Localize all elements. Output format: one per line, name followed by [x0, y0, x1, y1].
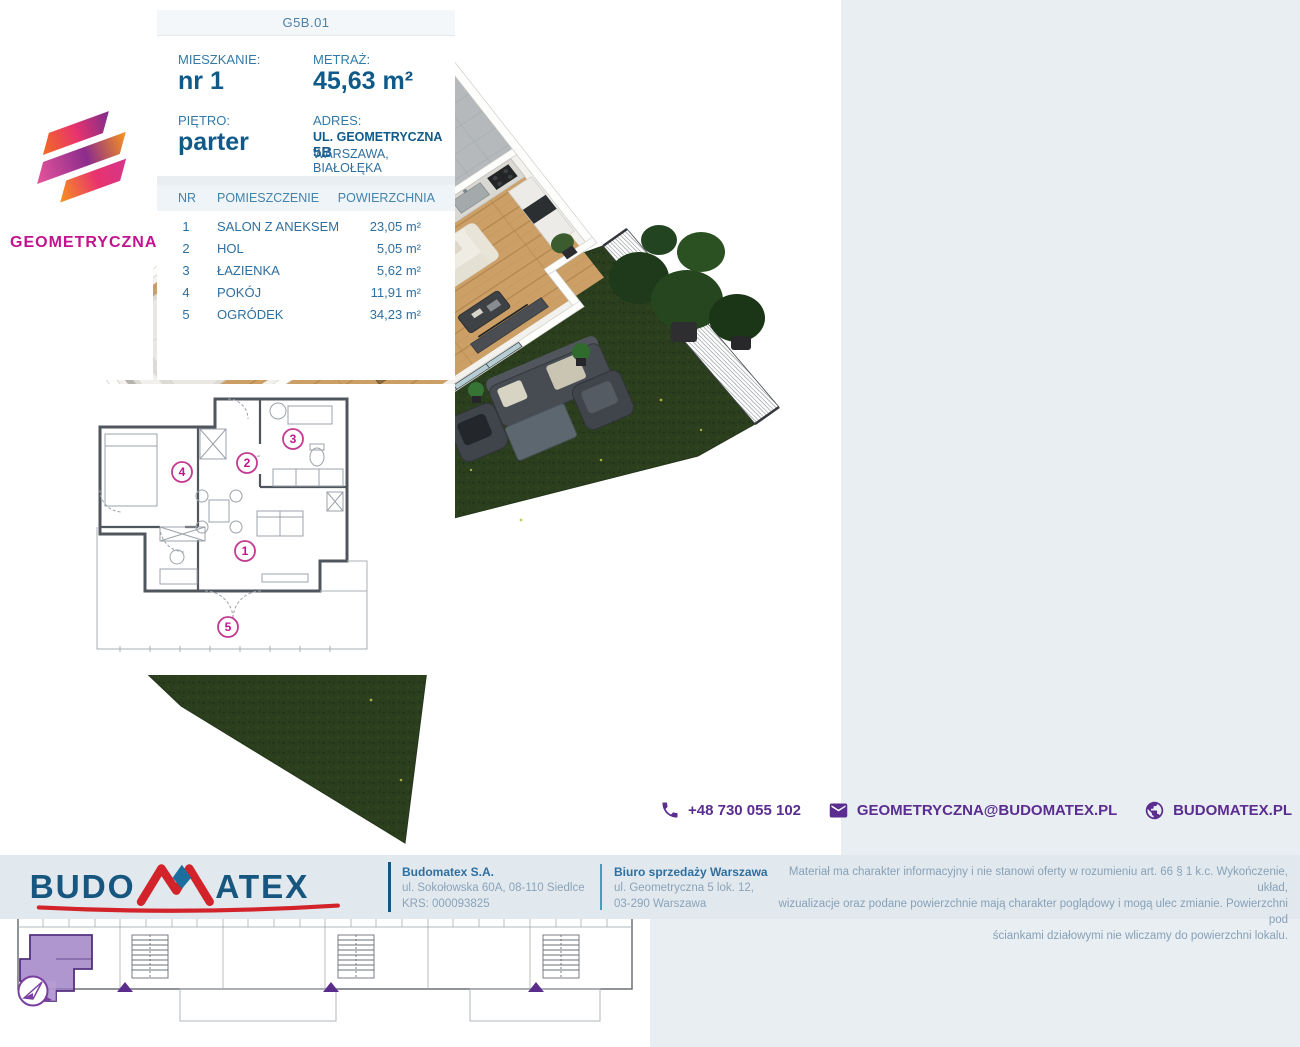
office-address-line2: 03-290 Warszawa	[614, 896, 768, 912]
table-row: 3 ŁAZIENKA 5,62 m²	[157, 260, 455, 282]
floor-label: PIĘTRO:	[178, 113, 230, 128]
sales-office-info: Biuro sprzedaży Warszawa ul. Geometryczn…	[614, 864, 768, 912]
phone-number: +48 730 055 102	[688, 802, 801, 819]
office-name: Biuro sprzedaży Warszawa	[614, 864, 768, 880]
table-row: 5 OGRÓDEK 34,23 m²	[157, 304, 455, 326]
table-row: 4 POKÓJ 11,91 m²	[157, 282, 455, 304]
floor-value: parter	[178, 128, 249, 157]
phone-icon	[660, 800, 680, 820]
door-swings-2d	[100, 399, 261, 619]
apartment-label: MIESZKANIE:	[178, 52, 260, 67]
rooms-table-header: NR POMIESZCZENIE POWIERZCHNIA	[157, 185, 455, 211]
unit-code: G5B.01	[157, 10, 455, 36]
terrace-outlines	[180, 989, 600, 1021]
address-label: ADRES:	[313, 113, 361, 128]
company-krs: KRS: 000093825	[402, 896, 585, 912]
address-city: WARSZAWA, BIAŁOŁĘKA	[313, 147, 455, 175]
geometryczna-hexagon-logo	[27, 105, 137, 225]
floorplan-2d: 1 2 3 4 5	[10, 384, 455, 675]
room-marker-2: 2	[244, 456, 251, 470]
room-marker-5: 5	[225, 620, 232, 634]
website-url: BUDOMATEX.PL	[1173, 802, 1292, 819]
room-marker-1: 1	[242, 544, 249, 558]
company-name: Budomatex S.A.	[402, 864, 585, 880]
budomatex-logo-part2: ATEX	[215, 869, 309, 906]
company-address: ul. Sokołowska 60A, 08-110 Siedlce	[402, 880, 585, 896]
office-address-line1: ul. Geometryczna 5 lok. 12,	[614, 880, 768, 896]
email-link[interactable]: GEOMETRYCZNA@BUDOMATEX.PL	[828, 800, 1117, 821]
table-row: 2 HOL 5,05 m²	[157, 238, 455, 260]
room-marker-3: 3	[290, 432, 297, 446]
room-marker-4: 4	[179, 465, 186, 479]
table-row: 1 SALON Z ANEKSEM 23,05 m²	[157, 216, 455, 238]
company-info: Budomatex S.A. ul. Sokołowska 60A, 08-11…	[402, 864, 585, 912]
furniture-2d	[105, 403, 343, 584]
globe-icon	[1144, 800, 1165, 821]
floorplan-2d-panel: 1 2 3 4 5	[10, 384, 455, 675]
footer-divider-1	[388, 862, 391, 912]
envelope-icon	[828, 800, 849, 821]
footer: BUDO ATEX Budomatex S.A. ul. Sokołowska …	[0, 855, 1300, 919]
footer-divider-2	[600, 864, 602, 910]
area-label: METRAŻ:	[313, 52, 370, 67]
budomatex-logo-mountain	[141, 865, 210, 902]
email-address: GEOMETRYCZNA@BUDOMATEX.PL	[857, 802, 1117, 819]
apartment-value: nr 1	[178, 67, 224, 96]
phone-link[interactable]: +48 730 055 102	[660, 800, 801, 820]
brand-name: GEOMETRYCZNA	[10, 234, 153, 252]
website-link[interactable]: BUDOMATEX.PL	[1144, 800, 1292, 821]
budomatex-logo: BUDO ATEX	[18, 861, 368, 913]
area-value: 45,63 m²	[313, 67, 413, 96]
apartment-info-panel: G5B.01 MIESZKANIE: nr 1 METRAŻ: 45,63 m²…	[157, 10, 455, 380]
apartment-outline	[100, 399, 347, 591]
divider	[157, 176, 455, 185]
legal-disclaimer: Materiał ma charakter informacyjny i nie…	[768, 864, 1288, 944]
brand-panel: GEOMETRYCZNA	[10, 10, 153, 380]
budomatex-logo-part1: BUDO	[30, 869, 136, 906]
contact-bar: +48 730 055 102 GEOMETRYCZNA@BUDOMATEX.P…	[660, 793, 1292, 827]
